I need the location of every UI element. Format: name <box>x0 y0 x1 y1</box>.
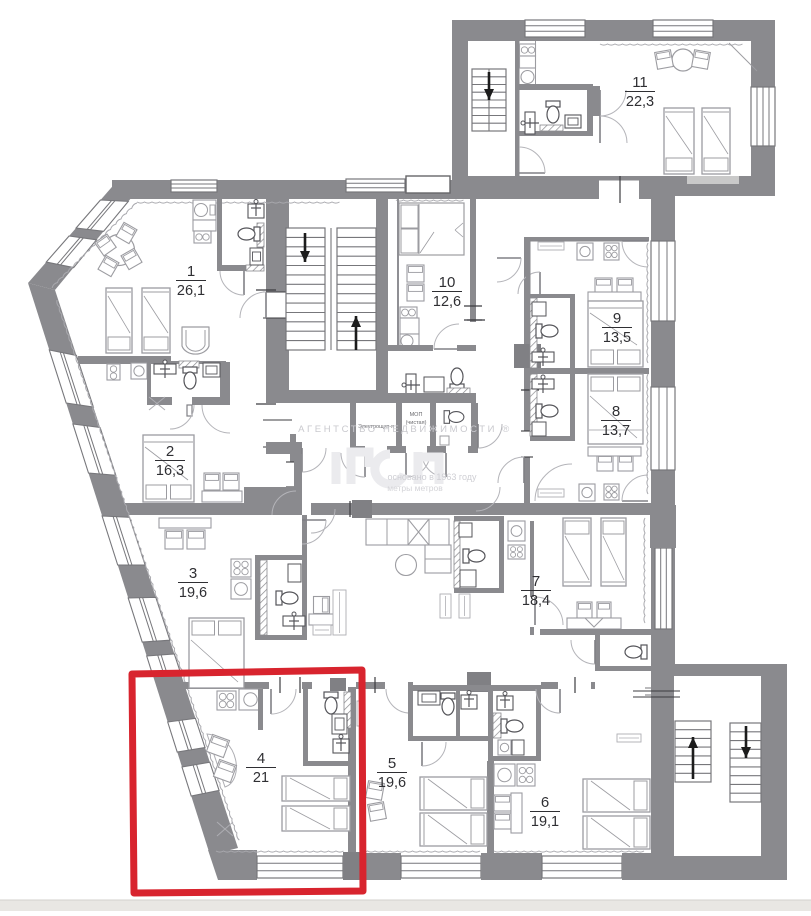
svg-text:12,6: 12,6 <box>433 294 461 310</box>
svg-text:3: 3 <box>189 565 197 582</box>
svg-text:основано в 1963 году: основано в 1963 году <box>387 472 477 482</box>
svg-text:21: 21 <box>253 770 269 786</box>
svg-text:19,6: 19,6 <box>179 585 207 601</box>
svg-text:9: 9 <box>613 310 621 327</box>
svg-text:26,1: 26,1 <box>177 283 205 299</box>
svg-text:2: 2 <box>166 443 174 460</box>
svg-text:11: 11 <box>632 74 648 91</box>
svg-text:8: 8 <box>612 403 620 420</box>
svg-text:6: 6 <box>541 794 549 811</box>
svg-text:АГЕНТСТВО НЕДВИЖИМОСТИ ®: АГЕНТСТВО НЕДВИЖИМОСТИ ® <box>298 424 512 435</box>
svg-text:16,3: 16,3 <box>156 463 184 479</box>
svg-text:13,5: 13,5 <box>603 330 631 346</box>
svg-text:19,6: 19,6 <box>378 775 406 791</box>
svg-text:1: 1 <box>187 263 195 280</box>
svg-text:4: 4 <box>257 750 265 767</box>
svg-text:18,4: 18,4 <box>522 593 550 609</box>
svg-text:метры метров: метры метров <box>387 483 443 493</box>
svg-text:5: 5 <box>388 755 396 772</box>
svg-text:13,7: 13,7 <box>602 423 630 439</box>
svg-text:МОП: МОП <box>410 412 423 418</box>
svg-text:7: 7 <box>532 573 540 590</box>
svg-text:19,1: 19,1 <box>531 814 559 830</box>
svg-text:22,3: 22,3 <box>626 94 654 110</box>
svg-text:10: 10 <box>439 274 456 291</box>
